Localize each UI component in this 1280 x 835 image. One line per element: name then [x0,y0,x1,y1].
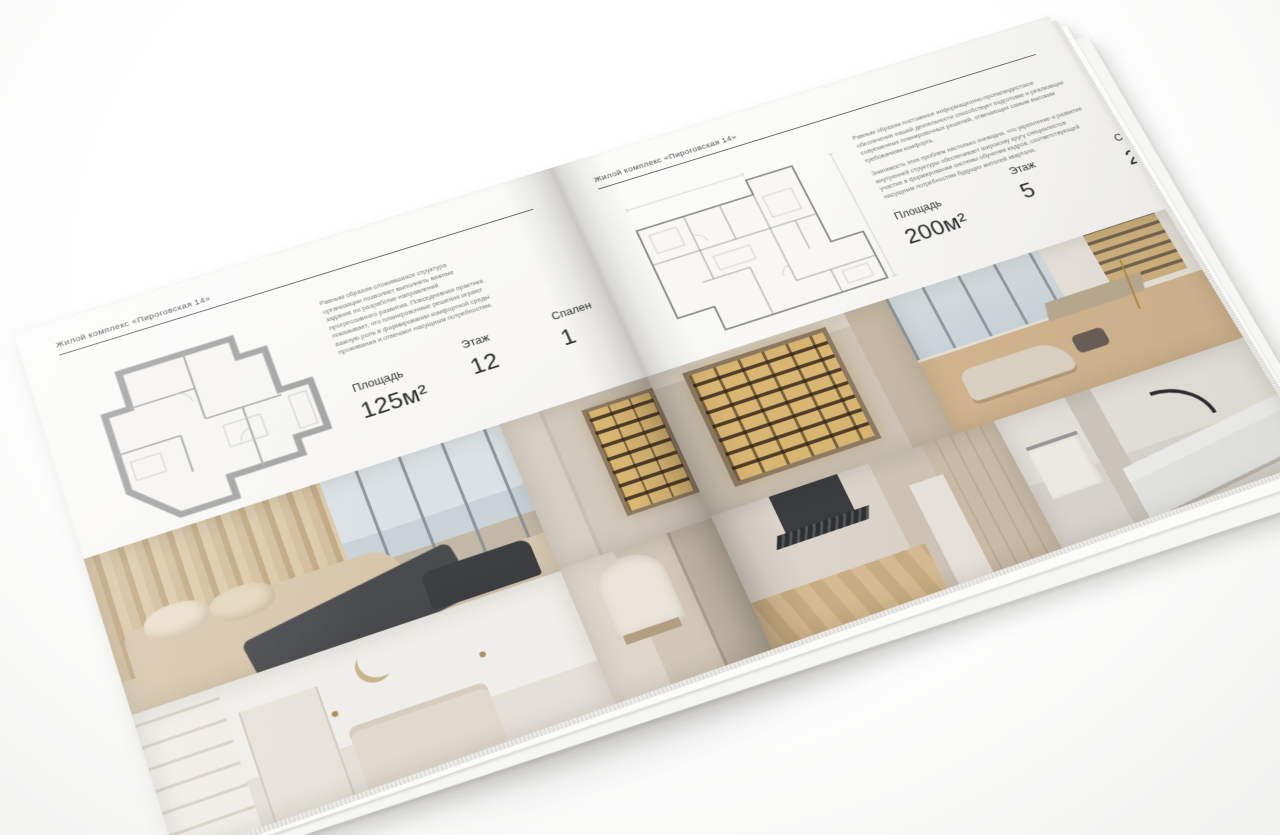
moon-decor-shape [350,645,396,688]
chair-shape [1070,326,1111,354]
chaise-shape [958,338,1078,402]
arch-niche-shape [588,546,687,640]
doorway-shape [909,474,994,584]
pillow-shape [205,576,280,628]
floor-lamp-shape [1119,260,1140,309]
spec-area: Площадь 125м² [351,363,433,425]
spec-floor: Этаж 5 [1007,159,1053,204]
desk-shape [1044,272,1144,322]
sconce-shape [479,650,487,657]
wall-panel-shape [1064,389,1159,523]
spec-floor-value: 5 [1016,175,1053,204]
spec-area: Площадь 200м² [892,193,973,250]
pillow-shape [139,594,214,646]
bookcase-shape [1083,212,1188,292]
spec-floor: Этаж 12 [460,332,504,381]
spec-floor-label: Этаж [460,332,492,351]
shelving-shape [134,695,261,835]
sconce-shape [331,710,339,718]
cooktop-shape [777,505,869,550]
console-shape [623,617,683,646]
faucet-shape [1149,377,1217,428]
photo-backdrop: Жилой комплекс «Пироговская 14» [0,0,1280,835]
lit-shelves-shape [682,327,882,487]
spec-bedrooms-value: 1 [557,316,606,351]
towel-shape [1027,434,1104,499]
open-brochure: Жилой комплекс «Пироговская 14» [13,16,1280,835]
spec-bedrooms: Спален 1 [550,299,607,351]
spec-floor-value: 12 [467,349,504,380]
